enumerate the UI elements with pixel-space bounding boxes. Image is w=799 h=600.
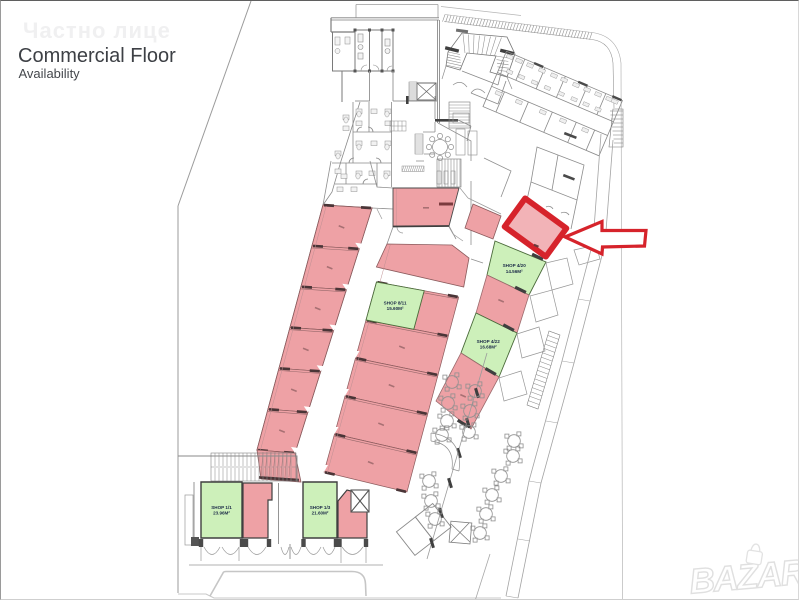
svg-text:14.56M²: 14.56M²	[506, 269, 523, 274]
svg-text:Commercial Floor: Commercial Floor	[18, 45, 176, 67]
svg-text:21.60M²: 21.60M²	[312, 511, 329, 516]
svg-text:Availability: Availability	[19, 66, 81, 81]
svg-text:SHOP 4/22: SHOP 4/22	[477, 339, 501, 344]
svg-text:SHOP 4/20: SHOP 4/20	[503, 263, 527, 268]
svg-text:SHOP 1/1: SHOP 1/1	[211, 505, 232, 510]
svg-text:SHOP 8/11: SHOP 8/11	[384, 301, 407, 306]
svg-text:Частно лице: Частно лице	[23, 18, 171, 43]
svg-text:16.68M²: 16.68M²	[480, 345, 497, 350]
svg-text:15.60M²: 15.60M²	[387, 306, 404, 311]
svg-text:23.96M²: 23.96M²	[213, 511, 230, 516]
svg-text:BAZAR: BAZAR	[688, 552, 799, 600]
svg-text:SHOP 1/3: SHOP 1/3	[310, 505, 331, 510]
